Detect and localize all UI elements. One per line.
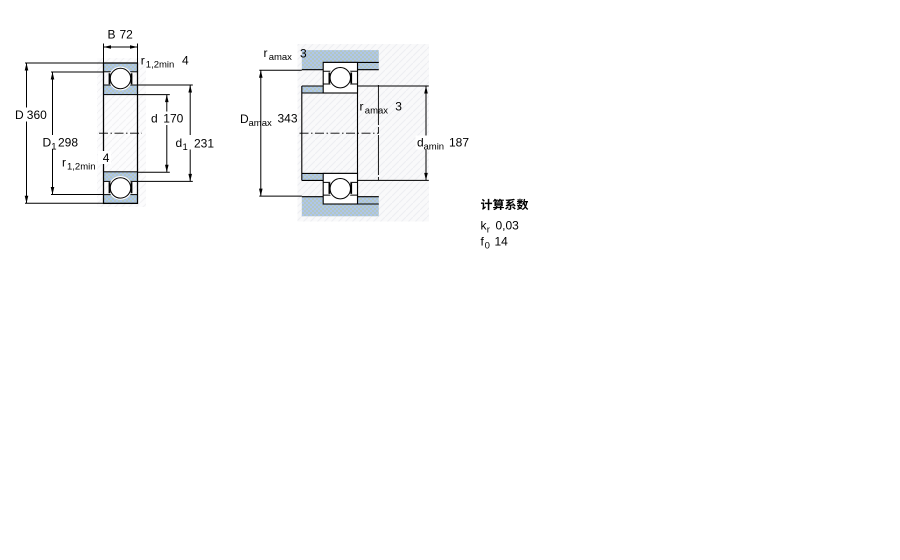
svg-text:360: 360: [27, 108, 47, 122]
svg-text:r: r: [264, 46, 268, 60]
svg-text:170: 170: [163, 112, 183, 126]
svg-text:r: r: [62, 156, 66, 170]
svg-text:4: 4: [103, 151, 110, 165]
svg-text:D: D: [15, 108, 24, 122]
svg-text:0: 0: [485, 241, 490, 252]
svg-text:d: d: [176, 136, 183, 150]
svg-text:d: d: [151, 112, 158, 126]
svg-text:72: 72: [120, 28, 134, 42]
svg-text:amax: amax: [249, 118, 272, 129]
svg-text:D: D: [43, 136, 52, 150]
svg-text:187: 187: [449, 136, 469, 150]
svg-text:0,03: 0,03: [496, 219, 520, 233]
svg-text:231: 231: [194, 137, 214, 151]
svg-text:B: B: [108, 28, 116, 42]
svg-text:1: 1: [51, 142, 56, 153]
svg-text:amax: amax: [269, 52, 292, 63]
svg-text:1,2min: 1,2min: [67, 162, 96, 173]
svg-text:amin: amin: [424, 142, 445, 153]
svg-text:3: 3: [395, 100, 402, 114]
svg-text:r: r: [360, 100, 364, 114]
svg-text:r: r: [487, 225, 490, 236]
svg-text:1,2min: 1,2min: [146, 60, 175, 71]
svg-text:r: r: [141, 54, 145, 68]
svg-text:298: 298: [58, 136, 78, 150]
svg-text:14: 14: [495, 235, 509, 249]
svg-text:3: 3: [300, 47, 307, 61]
svg-text:1: 1: [183, 142, 188, 153]
svg-text:amax: amax: [365, 106, 388, 117]
svg-text:4: 4: [182, 54, 189, 68]
svg-text:343: 343: [278, 112, 298, 126]
